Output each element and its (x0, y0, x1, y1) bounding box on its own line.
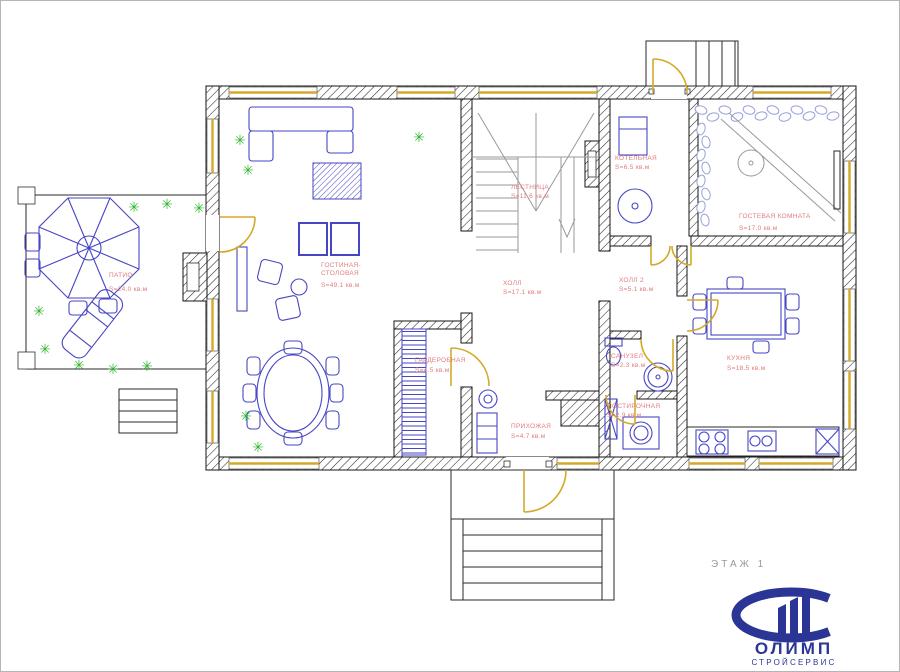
window (479, 87, 597, 98)
room-name: ГАРДЕРОБНАЯ (415, 357, 466, 364)
armchair (257, 259, 284, 286)
door-bathroom (641, 339, 673, 371)
room-name: ЛЕСТНИЦА (511, 184, 549, 191)
room-name: ХОЛЛ (503, 280, 522, 287)
patio-umbrella-table (25, 198, 139, 315)
window (397, 87, 455, 98)
room-area: S=17.1 кв.м (503, 289, 542, 296)
room-area: S=4.5 кв.м (415, 367, 450, 374)
hall-plant-pot (479, 390, 497, 408)
sink (748, 431, 776, 451)
room-label-stairs: ЛЕСТНИЦА S=11.6 кв.м (511, 184, 549, 200)
room-area: S=24.0 кв.м (109, 286, 148, 293)
staircase (473, 113, 599, 253)
exterior-walls (206, 86, 856, 470)
plant-icon: ✳ (193, 201, 205, 217)
logo-bar-icon (802, 590, 810, 637)
window (844, 161, 855, 233)
room-name: ПАТИО (109, 272, 133, 279)
window (557, 458, 599, 469)
company-logo: ОЛИМП СТРОЙСЕРВИС (736, 590, 846, 667)
plant-icon: ✳ (73, 358, 85, 374)
window (844, 371, 855, 429)
room-name: САНУЗЕЛ (611, 353, 643, 360)
fridge (816, 429, 839, 454)
room-name: ХОЛЛ 2 (619, 277, 644, 284)
wardrobe-entry-furniture (402, 329, 497, 455)
room-name: СТОЛОВАЯ (321, 270, 359, 277)
room-area: S=17.0 кв.м (739, 225, 778, 232)
coffee-table (299, 223, 327, 255)
room-name: ПРИХОЖАЯ (511, 423, 551, 430)
room-name: ПОСТИРОЧНАЯ (607, 403, 660, 410)
room-label-hall: ХОЛЛ S=17.1 кв.м (503, 280, 542, 296)
room-name: ГОСТЕВАЯ КОМНАТА (739, 213, 811, 220)
room-label-bathroom: САНУЗЕЛ S=2.3 кв.м (611, 353, 646, 369)
tv-console (237, 247, 247, 311)
room-label-hall2: ХОЛЛ 2 S=5.1 кв.м (619, 277, 654, 293)
room-area: S=2.3 кв.м (611, 362, 646, 369)
plant-icon: ✳ (39, 342, 51, 358)
room-area: S=18.5 кв.м (727, 365, 766, 372)
room-name: КУХНЯ (727, 355, 750, 362)
room-label-guest: ГОСТЕВАЯ КОМНАТА S=17.0 кв.м (739, 213, 811, 232)
room-area: S=2.9 кв.м (607, 412, 642, 419)
rug (313, 163, 361, 199)
radiator (834, 151, 840, 209)
entrance-porch (451, 461, 614, 600)
window (229, 458, 319, 469)
door-kitchen (687, 300, 718, 331)
window (759, 458, 833, 469)
plant-icon: ✳ (161, 197, 173, 213)
patio-column (18, 187, 35, 204)
armchair (275, 295, 301, 321)
logo-bar-icon (790, 597, 798, 637)
window (229, 87, 317, 98)
guest-room-decor (694, 104, 841, 227)
interior-walls (183, 99, 843, 457)
plant-icon: ✳ (128, 200, 140, 216)
windows (206, 86, 855, 470)
kitchen-table-set (693, 277, 799, 353)
plant-icon: ✳ (107, 362, 119, 378)
door-entrance (524, 470, 566, 512)
sofa (249, 107, 353, 161)
top-porch (646, 41, 738, 94)
room-area: S=4.7 кв.м (511, 433, 546, 440)
floor-caption: ЭТАЖ 1 (711, 559, 766, 570)
room-label-living-dining: ГОСТИНАЯ- СТОЛОВАЯ S=49.1 кв.м (321, 262, 361, 289)
room-area: S=49.1 кв.м (321, 282, 360, 289)
room-name: КОТЕЛЬНАЯ (615, 155, 657, 162)
side-table (291, 279, 307, 295)
plant-icon: ✳ (33, 304, 45, 320)
floorplan-canvas: ✳ ✳ ✳ ✳ ✳ ✳ ✳ ✳ ✳ ✳ ✳ ✳ ✳ ПАТИО S=24.0 к… (0, 0, 900, 672)
coffee-table (331, 223, 359, 255)
stone-border (694, 104, 840, 227)
room-label-patio: ПАТИО S=24.0 кв.м (109, 272, 148, 293)
room-label-entry: ПРИХОЖАЯ S=4.7 кв.м (511, 423, 551, 440)
window (844, 289, 855, 361)
room-label-kitchen: КУХНЯ S=18.5 кв.м (727, 355, 766, 372)
door-wardrobe (451, 348, 489, 386)
window (753, 87, 831, 98)
logo-bar-icon (778, 604, 786, 637)
plant-icon: ✳ (240, 409, 252, 425)
dining-set (243, 341, 343, 445)
window (207, 391, 218, 443)
logo-company-name: ОЛИМП (755, 639, 833, 658)
washing-machine (623, 417, 659, 449)
room-area: S=11.6 кв.м (511, 193, 549, 200)
room-area: S=5.1 кв.м (619, 286, 654, 293)
room-area: S=6.5 кв.м (615, 164, 650, 171)
floorplan-drawing: ✳ ✳ ✳ ✳ ✳ ✳ ✳ ✳ ✳ ✳ ✳ ✳ ✳ ПАТИО S=24.0 к… (1, 1, 900, 672)
shoe-cabinet (477, 413, 497, 453)
logo-company-subtitle: СТРОЙСЕРВИС (751, 658, 836, 667)
door-patio (220, 217, 255, 252)
room-name: ГОСТИНАЯ- (321, 262, 361, 269)
plant-icon: ✳ (234, 133, 246, 149)
window (207, 299, 218, 351)
window (689, 458, 745, 469)
wardrobe-shelving (402, 329, 426, 455)
window (207, 119, 218, 173)
stove (696, 430, 728, 454)
plant-icon: ✳ (413, 130, 425, 146)
room-label-boiler: КОТЕЛЬНАЯ S=6.5 кв.м (615, 155, 657, 171)
plant-icon: ✳ (141, 359, 153, 375)
patio-column (18, 352, 35, 369)
plant-icon: ✳ (242, 163, 254, 179)
side-steps (119, 389, 177, 433)
plants: ✳ ✳ ✳ ✳ ✳ ✳ ✳ ✳ ✳ ✳ ✳ ✳ ✳ (33, 130, 425, 456)
plant-icon: ✳ (252, 440, 264, 456)
